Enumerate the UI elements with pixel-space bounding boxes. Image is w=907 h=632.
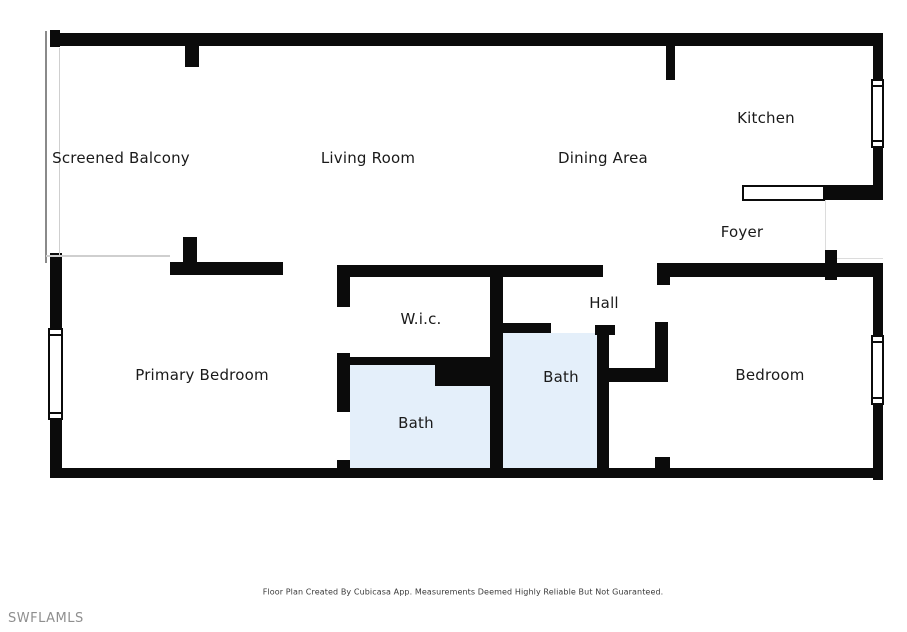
wall-segment <box>50 33 883 46</box>
wall-segment <box>503 323 551 333</box>
wall-segment <box>350 357 440 365</box>
balcony-screen-line <box>45 31 47 263</box>
wall-segment <box>657 277 670 285</box>
window-cap <box>873 85 882 87</box>
room-label-foyer: Foyer <box>721 223 764 241</box>
wall-segment <box>873 400 883 480</box>
window-cap <box>873 397 882 399</box>
window <box>871 335 884 405</box>
wall-segment <box>337 460 350 478</box>
wall-segment <box>337 265 603 277</box>
room-label-screened-balcony: Screened Balcony <box>52 149 190 167</box>
room-label-primary-bedroom: Primary Bedroom <box>135 366 269 384</box>
wall-segment <box>825 185 883 200</box>
wall-segment <box>170 262 283 275</box>
wall-segment <box>337 265 350 307</box>
wall-segment <box>50 468 883 478</box>
wall-segment <box>50 253 62 330</box>
wall-segment <box>490 277 503 468</box>
room-label-kitchen: Kitchen <box>737 109 795 127</box>
plumbing-block <box>435 357 498 386</box>
hall-bath-floor-fill <box>503 333 597 468</box>
mls-watermark: SWFLAMLS <box>8 611 84 626</box>
window <box>871 79 884 148</box>
room-label-wic: W.i.c. <box>400 310 441 328</box>
window-cap <box>873 140 882 142</box>
window-cap <box>50 412 61 414</box>
wall-segment <box>597 325 609 468</box>
kitchen-counter <box>742 185 825 201</box>
window-cap <box>873 341 882 343</box>
room-label-primary-bath: Bath <box>398 414 434 432</box>
wall-segment <box>873 46 883 81</box>
wall-segment <box>185 46 199 67</box>
room-label-dining-area: Dining Area <box>558 149 648 167</box>
window-cap <box>50 334 61 336</box>
room-label-hall-bath: Bath <box>543 368 579 386</box>
wall-segment <box>655 457 670 468</box>
room-label-hall: Hall <box>589 294 619 312</box>
window <box>48 328 63 420</box>
wall-segment <box>873 277 883 337</box>
wall-segment <box>337 353 350 412</box>
wall-segment <box>825 250 837 280</box>
wall-segment <box>666 46 675 80</box>
balcony-opening-line <box>46 255 170 257</box>
wall-segment <box>183 237 197 262</box>
wall-segment <box>657 263 883 277</box>
disclaimer-text: Floor Plan Created By Cubicasa App. Meas… <box>263 588 664 597</box>
floor-plan: Screened Balcony Living Room Dining Area… <box>0 0 907 632</box>
room-label-bedroom: Bedroom <box>735 366 804 384</box>
room-label-living-room: Living Room <box>321 149 415 167</box>
wall-segment <box>608 368 668 382</box>
